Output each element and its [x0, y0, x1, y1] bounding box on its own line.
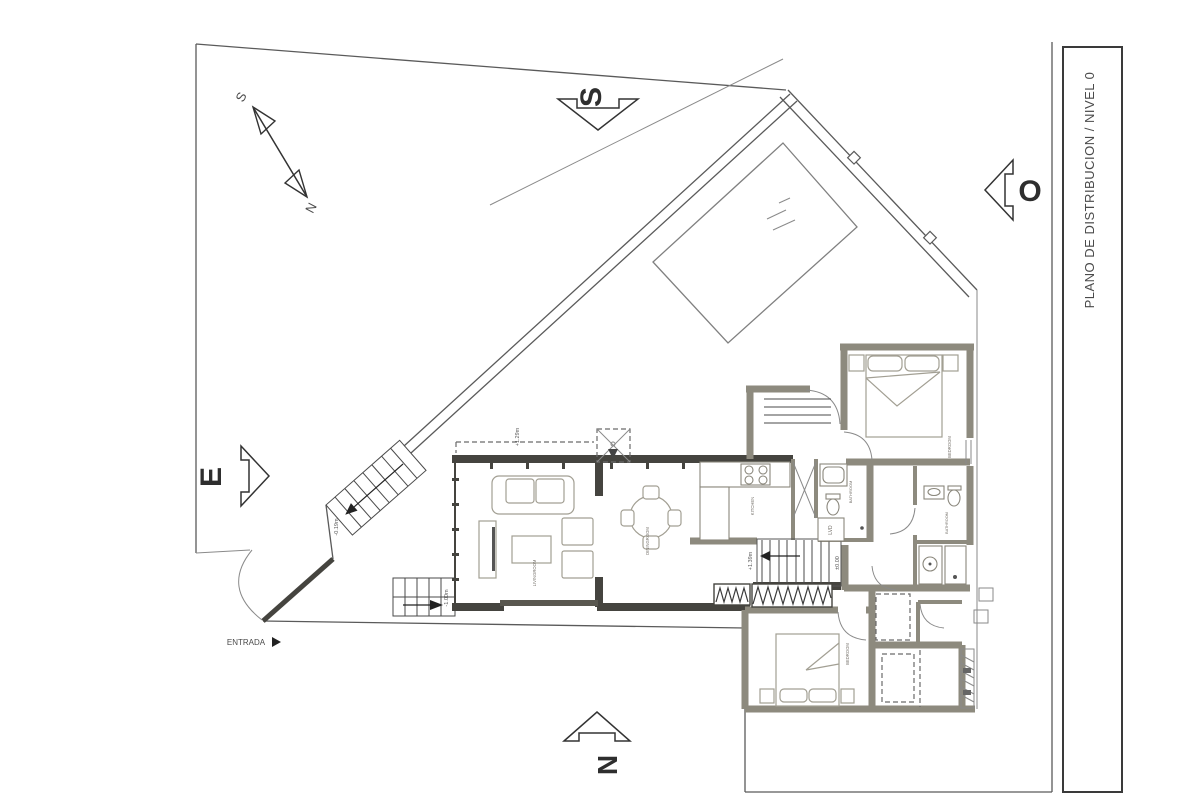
armchair — [562, 518, 593, 545]
room-label-living: LIVINGROOM — [532, 559, 537, 586]
room-label-kitchen: KITCHEN — [750, 497, 755, 515]
floorplan-drawing: PLANO DE DISTRIBUCION / NIVEL 0 — [0, 0, 1200, 807]
nightstand — [841, 689, 854, 703]
marker-east: E — [195, 446, 269, 506]
room-label-bedroom-main: BEDROOM — [947, 436, 952, 458]
east-arrow-icon — [241, 446, 269, 506]
nightstand — [760, 689, 774, 703]
living-room-furniture — [479, 476, 598, 606]
room-label-bathroom-suite: BATHROOM — [945, 512, 949, 534]
marker-west-letter: O — [1018, 175, 1041, 208]
pool — [653, 143, 857, 343]
toilet — [948, 490, 960, 506]
drawing-title: PLANO DE DISTRIBUCION / NIVEL 0 — [1082, 72, 1097, 309]
wardrobes — [714, 584, 832, 607]
title-block: PLANO DE DISTRIBUCION / NIVEL 0 — [1052, 42, 1122, 792]
entrance: ENTRADA — [227, 550, 333, 647]
bedroom-main-furniture — [849, 355, 958, 437]
marker-north: N — [564, 712, 630, 775]
planter — [979, 588, 993, 601]
pillow — [868, 356, 902, 371]
level-ground: ±0.00 — [835, 556, 841, 570]
kitchen-counter — [700, 487, 729, 540]
dining-furniture — [621, 486, 681, 549]
compass-north-label: N — [302, 200, 320, 215]
dining-table — [630, 496, 672, 538]
floorplan-page: PLANO DE DISTRIBUCION / NIVEL 0 — [0, 0, 1200, 807]
level-garden: -1.00m — [444, 589, 450, 607]
marker-south: S — [558, 87, 638, 130]
chair — [621, 510, 634, 526]
room-label-bedroom-second: BEDROOM — [845, 643, 850, 665]
window-sill — [500, 600, 598, 606]
marker-north-letter: N — [592, 755, 623, 775]
compass-south-label: S — [232, 89, 249, 104]
bedroom-second-furniture — [760, 634, 854, 706]
level-roof-overhang: +1.29m — [515, 427, 521, 446]
level-stair-upper: +1.39m — [748, 551, 754, 570]
coffee-table — [512, 536, 551, 563]
room-label-laundry: LVD — [828, 525, 834, 535]
pillow — [780, 689, 807, 702]
compass: S N — [232, 89, 319, 215]
entrance-gate-leaf — [263, 559, 333, 621]
entrance-arrow-icon — [272, 637, 281, 647]
entrance-label: ENTRADA — [227, 638, 266, 647]
marker-west: O — [985, 160, 1042, 220]
entrance-gate-swing — [239, 550, 262, 620]
toilet — [827, 499, 839, 515]
nightstand — [943, 355, 958, 371]
ensuite-fixtures — [919, 486, 966, 584]
chair — [668, 510, 681, 526]
chair — [643, 486, 659, 499]
planter — [974, 610, 988, 623]
marker-east-letter: E — [195, 467, 228, 487]
room-label-bathroom: BATHROOM — [848, 481, 853, 504]
marker-south-letter: S — [575, 87, 608, 107]
kitchen-fixtures — [700, 462, 790, 540]
tv — [492, 527, 495, 571]
entry-steps — [764, 399, 831, 423]
nightstand — [849, 355, 864, 371]
level-exterior-stair: -0.19m — [334, 518, 340, 536]
west-arrow-icon — [985, 160, 1013, 220]
pillow — [905, 356, 939, 371]
pillow — [809, 689, 836, 702]
exterior-stairs — [326, 440, 426, 535]
north-arrow-icon — [564, 712, 630, 741]
room-label-dining: DININGROOM — [645, 527, 650, 555]
interior-stairs — [757, 539, 841, 586]
armchair — [562, 551, 593, 578]
